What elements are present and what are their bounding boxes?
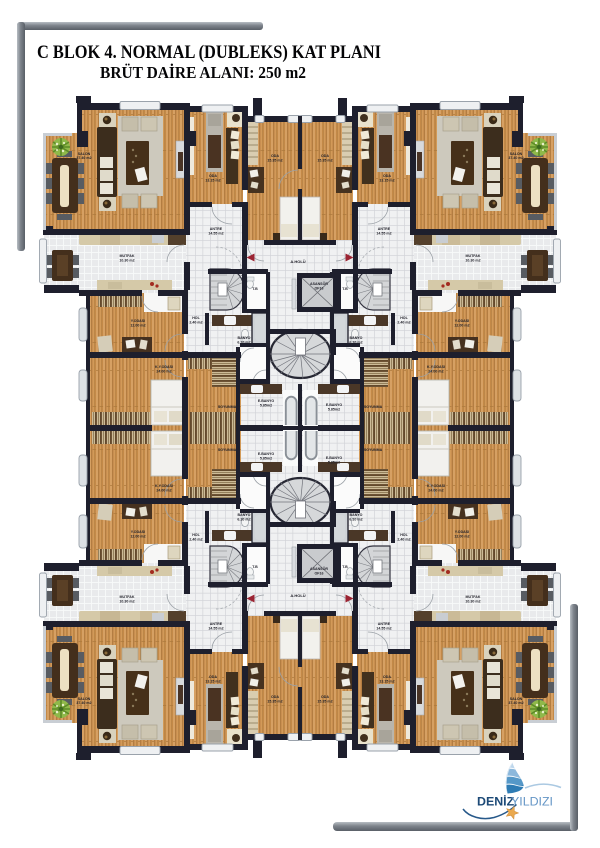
svg-text:15.35 m2: 15.35 m2 bbox=[317, 700, 332, 704]
svg-text:HOL: HOL bbox=[400, 316, 408, 320]
svg-text:C BLOK 4. NORMAL (DUBLEKS) KAT: C BLOK 4. NORMAL (DUBLEKS) KAT PLANI bbox=[37, 43, 381, 63]
svg-text:ANTRE: ANTRE bbox=[378, 622, 391, 626]
svg-text:HOL: HOL bbox=[192, 533, 200, 537]
svg-text:12.00 m2: 12.00 m2 bbox=[130, 324, 145, 328]
svg-text:ODA: ODA bbox=[209, 675, 217, 679]
svg-text:24.00 m2: 24.00 m2 bbox=[428, 489, 443, 493]
svg-text:ANTRE: ANTRE bbox=[210, 622, 223, 626]
svg-text:A.HOLÜ: A.HOLÜ bbox=[290, 593, 305, 598]
svg-text:12.00 m2: 12.00 m2 bbox=[454, 324, 469, 328]
svg-text:13.15 m2: 13.15 m2 bbox=[205, 179, 220, 183]
svg-text:ODA: ODA bbox=[383, 174, 391, 178]
svg-text:T.B: T.B bbox=[342, 565, 348, 569]
svg-text:ANTRE: ANTRE bbox=[210, 227, 223, 231]
svg-text:MUTFAK: MUTFAK bbox=[120, 254, 135, 258]
svg-text:OF16: OF16 bbox=[315, 572, 324, 576]
svg-text:2.40 m2: 2.40 m2 bbox=[397, 321, 410, 325]
svg-text:14.55 m2: 14.55 m2 bbox=[376, 627, 391, 631]
svg-text:2.40 m2: 2.40 m2 bbox=[397, 538, 410, 542]
svg-text:ASANSÖR: ASANSÖR bbox=[310, 566, 328, 571]
svg-text:5.85m2: 5.85m2 bbox=[260, 457, 272, 461]
svg-text:K.Y.ODASI: K.Y.ODASI bbox=[427, 484, 445, 488]
svg-text:24.00 m2: 24.00 m2 bbox=[156, 370, 171, 374]
svg-text:Y.ODASI: Y.ODASI bbox=[131, 530, 145, 534]
svg-text:E.BANYO: E.BANYO bbox=[326, 456, 343, 460]
svg-text:T.B: T.B bbox=[252, 565, 258, 569]
svg-text:5.85m2: 5.85m2 bbox=[328, 461, 340, 465]
svg-text:SOYUNMA: SOYUNMA bbox=[364, 405, 383, 409]
svg-text:K.Y.ODASI: K.Y.ODASI bbox=[155, 365, 173, 369]
svg-text:37.40 m2: 37.40 m2 bbox=[76, 701, 91, 705]
svg-text:2.40 m2: 2.40 m2 bbox=[189, 321, 202, 325]
svg-text:BANYO: BANYO bbox=[238, 336, 251, 340]
svg-text:Y.ODASI: Y.ODASI bbox=[131, 319, 145, 323]
svg-text:E.BANYO: E.BANYO bbox=[258, 452, 275, 456]
svg-text:HOL: HOL bbox=[192, 316, 200, 320]
svg-text:14.55 m2: 14.55 m2 bbox=[208, 627, 223, 631]
svg-text:ODA: ODA bbox=[271, 695, 279, 699]
svg-text:ANTRE: ANTRE bbox=[378, 227, 391, 231]
svg-text:10.30 m2: 10.30 m2 bbox=[465, 259, 480, 263]
svg-text:Y.ODASI: Y.ODASI bbox=[455, 319, 469, 323]
svg-text:DENİZ: DENİZ bbox=[477, 794, 515, 809]
svg-text:15.35 m2: 15.35 m2 bbox=[267, 700, 282, 704]
svg-text:12.00 m2: 12.00 m2 bbox=[454, 535, 469, 539]
svg-text:A.HOLÜ: A.HOLÜ bbox=[290, 259, 305, 264]
svg-text:ODA: ODA bbox=[383, 675, 391, 679]
svg-text:13.15 m2: 13.15 m2 bbox=[379, 179, 394, 183]
svg-text:BANYO: BANYO bbox=[238, 513, 251, 517]
svg-text:24.00 m2: 24.00 m2 bbox=[428, 370, 443, 374]
svg-text:6.10 m2: 6.10 m2 bbox=[237, 341, 250, 345]
svg-text:ODA: ODA bbox=[321, 695, 329, 699]
svg-text:T.B: T.B bbox=[252, 287, 258, 291]
svg-text:HOL: HOL bbox=[400, 533, 408, 537]
svg-text:SOYUNMA: SOYUNMA bbox=[218, 448, 237, 452]
svg-text:10.30 m2: 10.30 m2 bbox=[465, 600, 480, 604]
svg-text:SOYUNMA: SOYUNMA bbox=[218, 405, 237, 409]
svg-text:E.BANYO: E.BANYO bbox=[326, 403, 343, 407]
svg-text:15.35 m2: 15.35 m2 bbox=[317, 159, 332, 163]
svg-text:13.15 m2: 13.15 m2 bbox=[205, 680, 220, 684]
svg-text:12.00 m2: 12.00 m2 bbox=[130, 535, 145, 539]
svg-text:ODA: ODA bbox=[321, 154, 329, 158]
svg-text:T.B: T.B bbox=[342, 287, 348, 291]
svg-text:6.10 m2: 6.10 m2 bbox=[349, 341, 362, 345]
svg-text:K.Y.ODASI: K.Y.ODASI bbox=[155, 484, 173, 488]
svg-text:MUTFAK: MUTFAK bbox=[466, 595, 481, 599]
svg-text:14.55 m2: 14.55 m2 bbox=[208, 232, 223, 236]
svg-text:6.10 m2: 6.10 m2 bbox=[237, 518, 250, 522]
svg-text:15.35 m2: 15.35 m2 bbox=[267, 159, 282, 163]
svg-text:2.40 m2: 2.40 m2 bbox=[189, 538, 202, 542]
svg-text:ODA: ODA bbox=[271, 154, 279, 158]
svg-text:BRÜT DAİRE ALANI: 250 m2: BRÜT DAİRE ALANI: 250 m2 bbox=[100, 63, 306, 82]
svg-text:37.40 m2: 37.40 m2 bbox=[76, 156, 91, 160]
svg-text:OF16: OF16 bbox=[315, 287, 324, 291]
svg-text:Y.ODASI: Y.ODASI bbox=[455, 530, 469, 534]
svg-text:SOYUNMA: SOYUNMA bbox=[364, 448, 383, 452]
svg-text:10.30 m2: 10.30 m2 bbox=[119, 259, 134, 263]
svg-text:5.85m2: 5.85m2 bbox=[328, 408, 340, 412]
svg-text:10.30 m2: 10.30 m2 bbox=[119, 600, 134, 604]
svg-text:37.40 m2: 37.40 m2 bbox=[508, 156, 523, 160]
svg-text:ASANSÖR: ASANSÖR bbox=[310, 281, 328, 286]
svg-text:MUTFAK: MUTFAK bbox=[466, 254, 481, 258]
svg-text:13.15 m2: 13.15 m2 bbox=[379, 680, 394, 684]
svg-text:MUTFAK: MUTFAK bbox=[120, 595, 135, 599]
svg-text:24.00 m2: 24.00 m2 bbox=[156, 489, 171, 493]
svg-text:YILDIZI: YILDIZI bbox=[511, 795, 553, 809]
svg-text:37.40 m2: 37.40 m2 bbox=[508, 701, 523, 705]
svg-text:5.85m2: 5.85m2 bbox=[260, 404, 272, 408]
svg-text:K.Y.ODASI: K.Y.ODASI bbox=[427, 365, 445, 369]
svg-text:E.BANYO: E.BANYO bbox=[258, 399, 275, 403]
svg-text:BANYO: BANYO bbox=[350, 336, 363, 340]
svg-text:6.10 m2: 6.10 m2 bbox=[349, 518, 362, 522]
svg-text:BANYO: BANYO bbox=[350, 513, 363, 517]
svg-text:14.55 m2: 14.55 m2 bbox=[376, 232, 391, 236]
svg-text:ODA: ODA bbox=[209, 174, 217, 178]
